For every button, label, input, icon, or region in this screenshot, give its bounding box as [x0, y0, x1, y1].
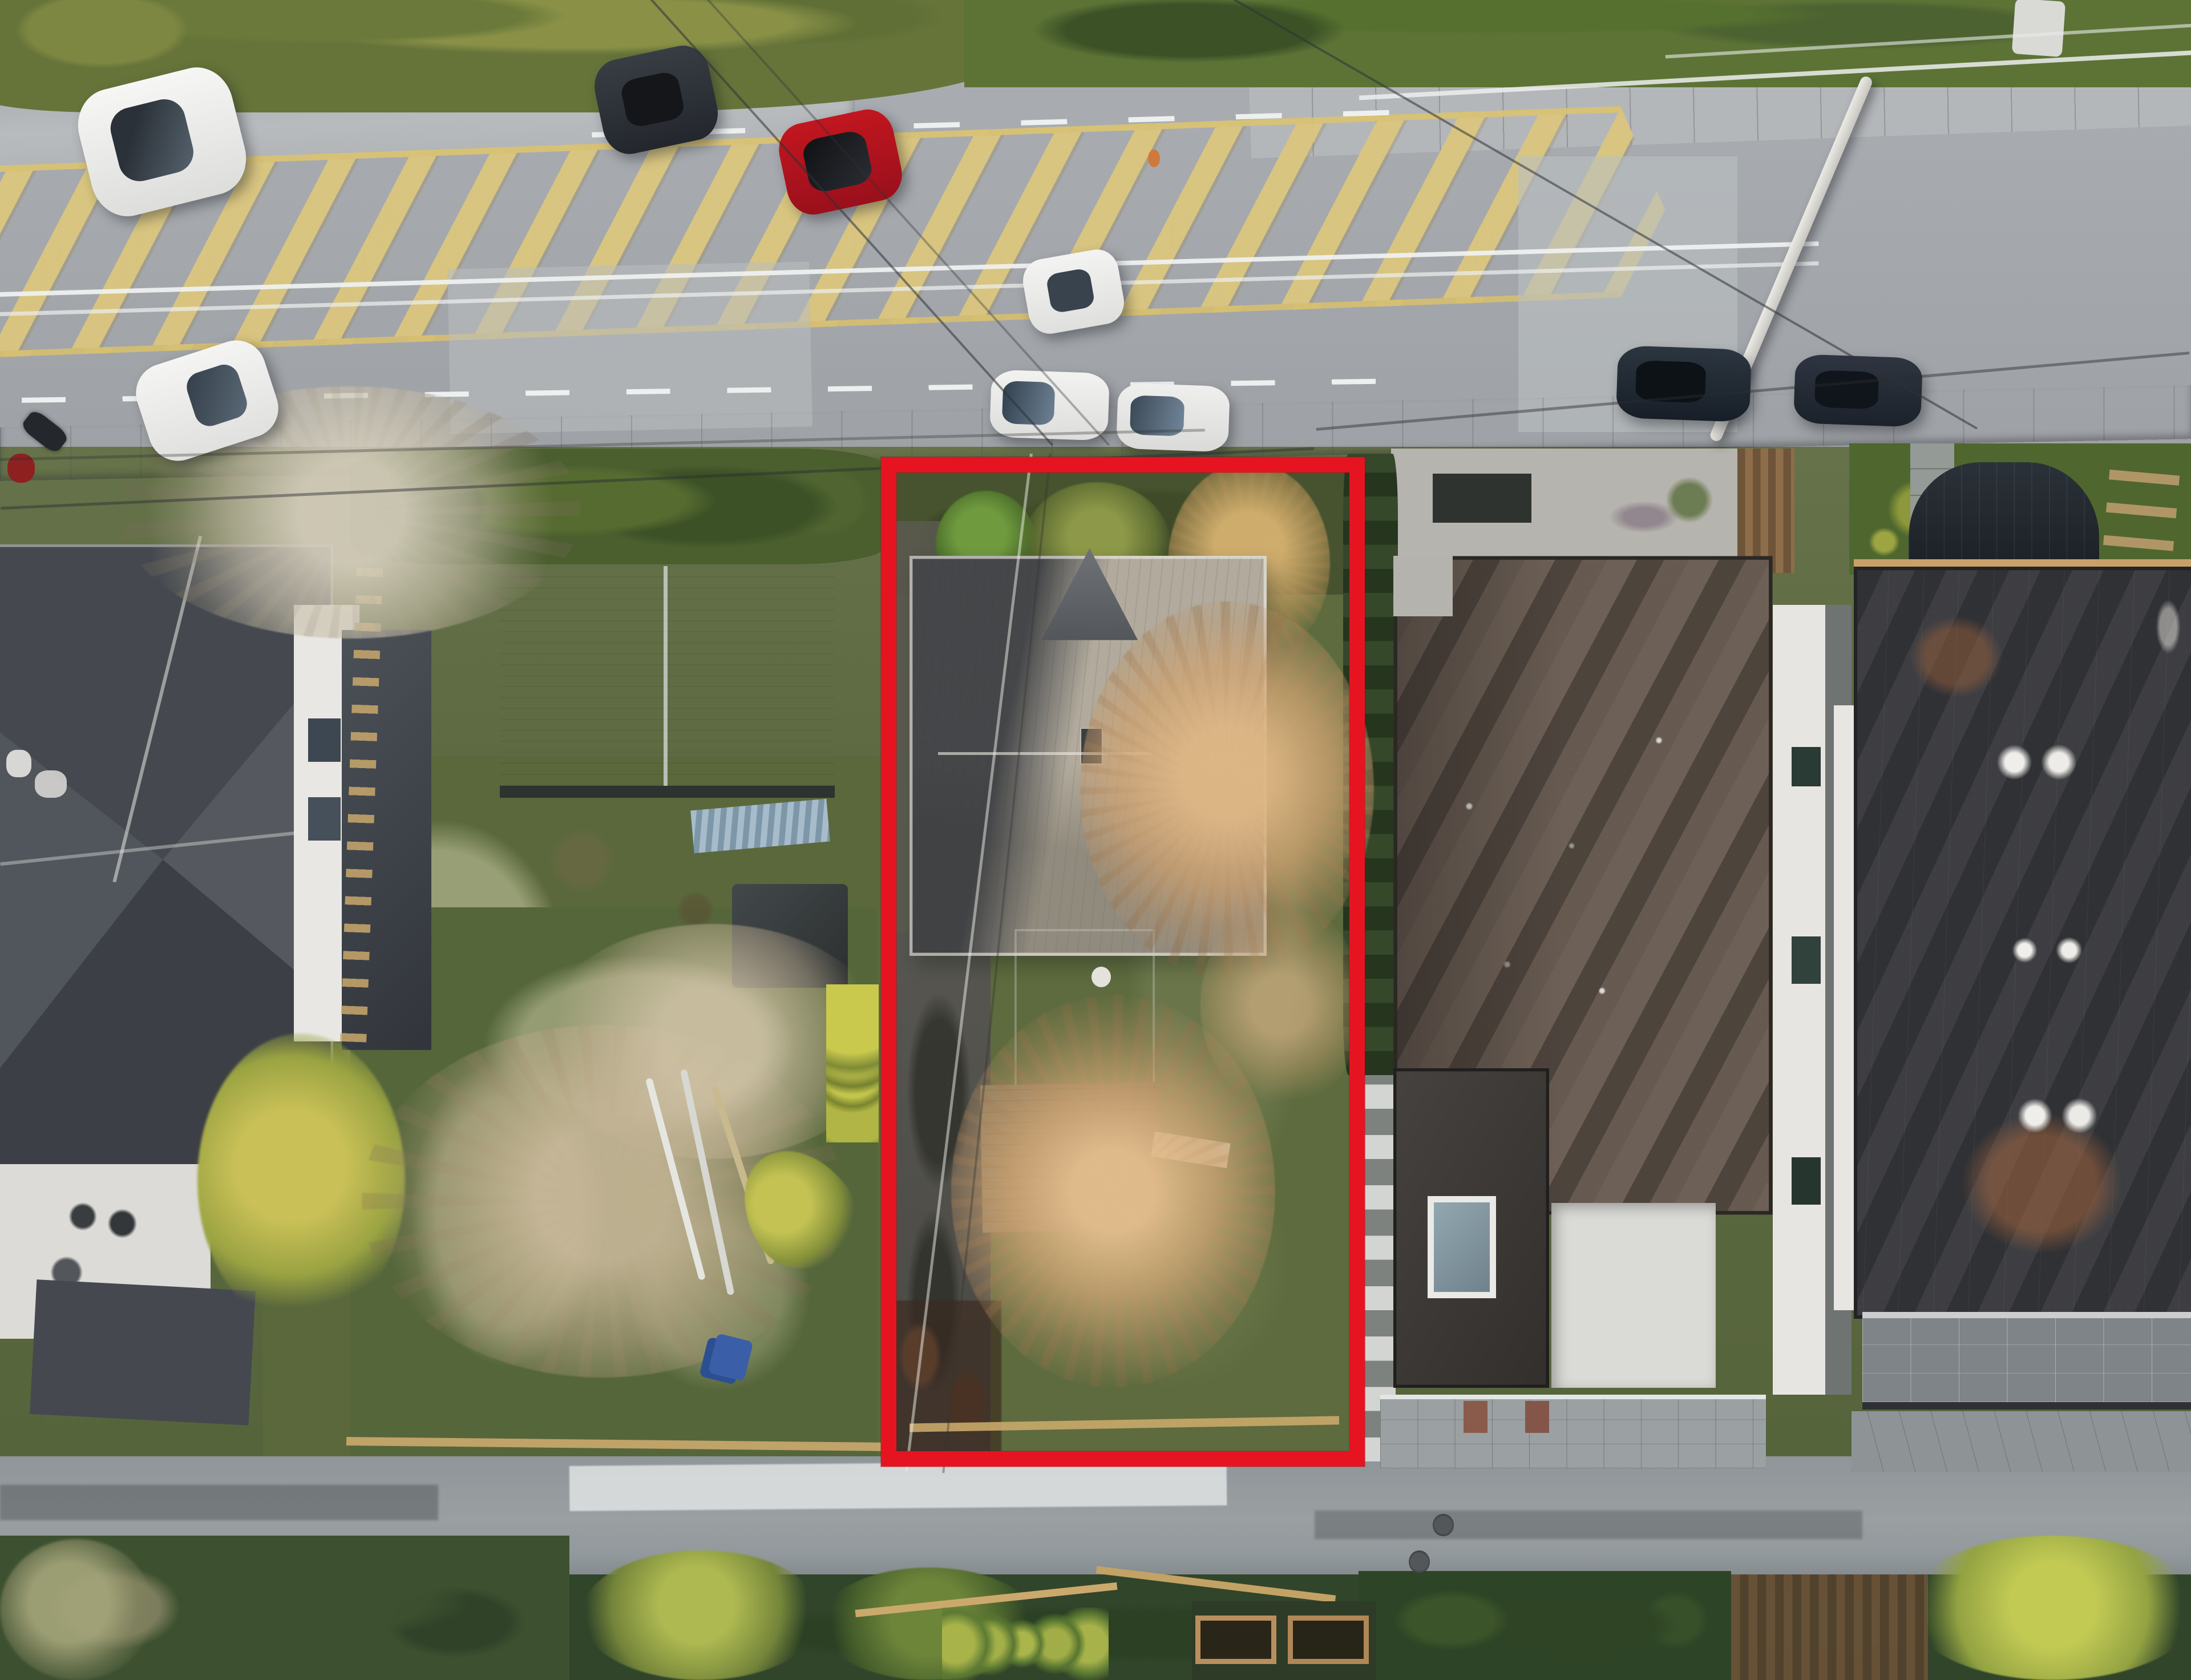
lane-white-paint-patch — [569, 1460, 1227, 1512]
red-accent-paver — [1464, 1401, 1487, 1433]
motorcycle-body — [20, 409, 70, 455]
white-object-top-right — [2012, 0, 2066, 57]
tiled-balcony — [1862, 1312, 2191, 1410]
car-glass — [1814, 370, 1879, 409]
left-neighbor-porch-roof — [30, 1279, 256, 1425]
car-glass — [801, 129, 874, 195]
property-boundary-outline — [881, 457, 1365, 1467]
parked-white-sedan — [1116, 383, 1230, 453]
car-glass — [183, 361, 250, 430]
roof-ridge — [664, 566, 668, 786]
lane-dark-patch — [0, 1485, 438, 1520]
concrete-patch-center — [447, 262, 812, 434]
bottom-wood-fence — [1731, 1574, 1929, 1680]
parked-dark-car-2 — [1793, 354, 1923, 427]
bottom-right-hedge — [1359, 1571, 1731, 1680]
curved-dark-shed — [1909, 462, 2099, 573]
parked-dark-car-1 — [1616, 345, 1752, 422]
orange-road-mark — [1148, 150, 1160, 167]
window — [1792, 1157, 1821, 1205]
lane-dark-patch — [1315, 1511, 1862, 1539]
aerial-photo-scene — [0, 0, 2191, 1680]
outbuilding-gable-roof — [500, 566, 835, 798]
modern-house-1-lower-wing — [1393, 1068, 1549, 1387]
front-pavers — [1852, 1411, 2191, 1472]
modern-house-2-roof — [1854, 559, 2191, 1319]
dark-planter — [1433, 474, 1531, 522]
motorcycle-with-rider — [5, 411, 77, 492]
paver-driveway — [1380, 1395, 1766, 1469]
roof-notch-gravel — [1393, 556, 1453, 616]
manhole-cover — [1433, 1514, 1453, 1537]
planter-box — [1288, 1616, 1369, 1665]
roof-ridge — [0, 829, 318, 866]
roadside-grass-top-right — [964, 0, 2191, 87]
planter-box — [1195, 1616, 1276, 1665]
bright-green-tree — [581, 1550, 822, 1680]
manhole-cover — [1409, 1550, 1429, 1573]
car-glass — [619, 70, 686, 129]
car-glass — [106, 95, 198, 186]
cypress-ball-row — [826, 984, 879, 1142]
window — [308, 718, 341, 762]
wood-fence — [1737, 449, 1794, 573]
skylight — [1428, 1196, 1496, 1298]
roof-vent — [35, 770, 67, 798]
red-accent-paver — [1525, 1401, 1549, 1433]
garden-planter-boxes — [1192, 1601, 1376, 1680]
roof-vent — [6, 750, 31, 777]
window — [1792, 936, 1821, 984]
car-glass — [1045, 267, 1095, 313]
dry-pale-shrub — [0, 1539, 153, 1680]
stacked-lumber — [690, 799, 830, 854]
bright-yellow-tree — [1906, 1536, 2191, 1680]
window — [1792, 747, 1821, 786]
round-shrub-row — [942, 1608, 1109, 1680]
white-patio-roof — [1551, 1203, 1716, 1388]
window — [308, 797, 341, 841]
